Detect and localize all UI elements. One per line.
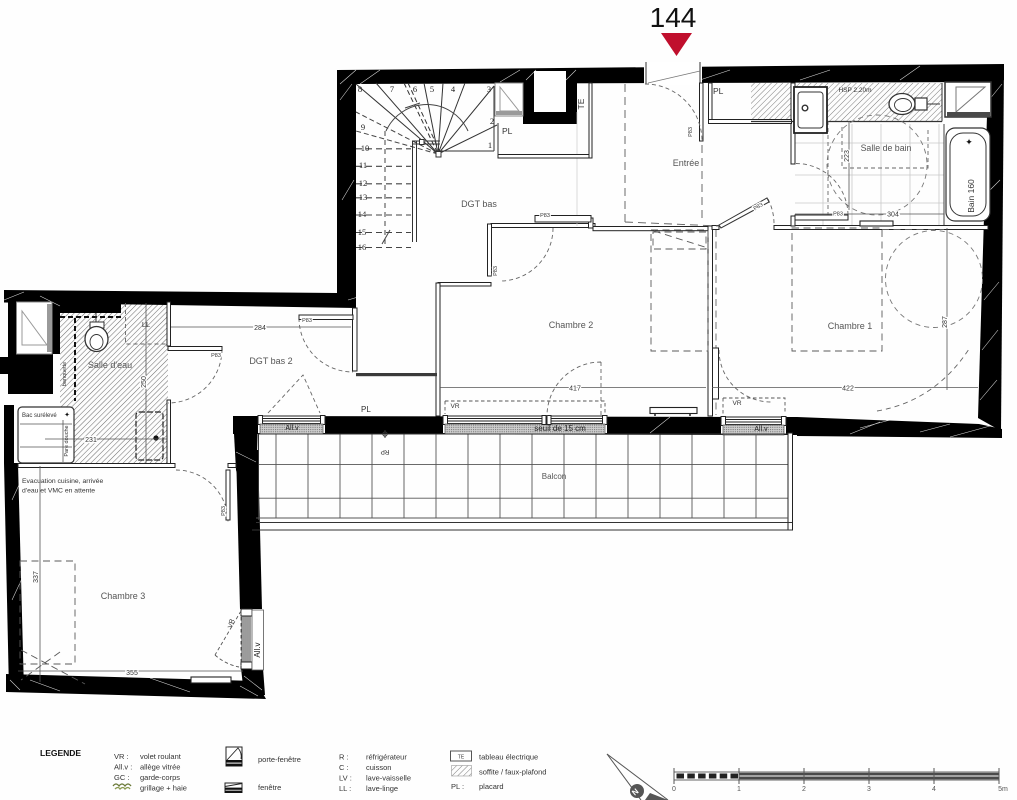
svg-text:RP: RP bbox=[380, 448, 389, 455]
svg-text:P83: P83 bbox=[211, 353, 221, 359]
svg-text:VR :: VR : bbox=[114, 752, 129, 761]
svg-text:284: 284 bbox=[254, 325, 266, 332]
svg-text:PL :: PL : bbox=[451, 782, 464, 791]
svg-text:✦: ✦ bbox=[965, 137, 973, 147]
svg-text:HSP 2.20m: HSP 2.20m bbox=[838, 87, 871, 94]
svg-text:Bac surélevé: Bac surélevé bbox=[22, 413, 57, 419]
svg-text:15: 15 bbox=[358, 227, 367, 237]
svg-text:All.v: All.v bbox=[253, 642, 262, 657]
svg-text:Evacuation cuisine, arrivée: Evacuation cuisine, arrivée bbox=[22, 478, 103, 485]
svg-text:3: 3 bbox=[487, 84, 491, 94]
svg-text:144: 144 bbox=[650, 2, 697, 33]
svg-text:1: 1 bbox=[488, 140, 492, 150]
svg-text:231: 231 bbox=[85, 437, 97, 444]
svg-text:allège vitrée: allège vitrée bbox=[140, 763, 180, 772]
svg-text:Chambre 1: Chambre 1 bbox=[828, 321, 873, 331]
svg-text:porte-fenêtre: porte-fenêtre bbox=[258, 755, 301, 764]
svg-text:3: 3 bbox=[867, 786, 871, 793]
svg-text:5m: 5m bbox=[998, 786, 1008, 793]
svg-text:0: 0 bbox=[672, 786, 676, 793]
svg-text:Salle de bain: Salle de bain bbox=[861, 143, 912, 153]
svg-text:R :: R : bbox=[339, 753, 349, 762]
svg-text:seuil de 15 cm: seuil de 15 cm bbox=[534, 424, 586, 433]
svg-text:Bain 160: Bain 160 bbox=[966, 179, 976, 213]
svg-text:LV :: LV : bbox=[339, 774, 352, 783]
svg-text:223: 223 bbox=[844, 150, 851, 162]
svg-text:Entrée: Entrée bbox=[673, 158, 700, 168]
svg-text:13: 13 bbox=[359, 192, 368, 202]
svg-text:355: 355 bbox=[126, 670, 138, 677]
svg-text:LL :: LL : bbox=[339, 784, 351, 793]
svg-text:PL: PL bbox=[713, 86, 724, 96]
svg-text:All.v :: All.v : bbox=[114, 763, 132, 772]
svg-text:C :: C : bbox=[339, 763, 349, 772]
svg-text:soffite / faux-plafond: soffite / faux-plafond bbox=[479, 768, 546, 777]
svg-text:P83: P83 bbox=[221, 506, 227, 516]
svg-text:304: 304 bbox=[887, 212, 899, 219]
svg-text:All.v: All.v bbox=[285, 425, 299, 432]
svg-text:PL: PL bbox=[361, 405, 371, 414]
svg-text:14: 14 bbox=[358, 209, 367, 219]
svg-text:PL: PL bbox=[502, 126, 513, 136]
svg-text:287: 287 bbox=[942, 316, 949, 328]
svg-text:banquette: banquette bbox=[62, 362, 68, 386]
svg-text:5: 5 bbox=[430, 84, 434, 94]
svg-text:DGT bas 2: DGT bas 2 bbox=[249, 356, 292, 366]
svg-text:VR: VR bbox=[732, 400, 741, 407]
svg-text:TE: TE bbox=[458, 755, 465, 761]
svg-text:Balcon: Balcon bbox=[542, 472, 566, 481]
svg-text:DGT bas: DGT bas bbox=[461, 199, 497, 209]
svg-text:volet roulant: volet roulant bbox=[140, 752, 182, 761]
svg-text:LEGENDE: LEGENDE bbox=[40, 748, 81, 758]
svg-text:P83: P83 bbox=[540, 213, 550, 219]
svg-text:P83: P83 bbox=[302, 318, 312, 324]
svg-text:12: 12 bbox=[359, 178, 368, 188]
svg-text:2: 2 bbox=[490, 116, 494, 126]
svg-text:P83: P83 bbox=[833, 212, 843, 218]
svg-text:9: 9 bbox=[361, 122, 365, 132]
svg-text:250: 250 bbox=[141, 376, 148, 388]
svg-text:Chambre 2: Chambre 2 bbox=[549, 320, 594, 330]
svg-text:TE: TE bbox=[576, 98, 586, 109]
svg-text:cuisson: cuisson bbox=[366, 763, 391, 772]
svg-text:lave-vaisselle: lave-vaisselle bbox=[366, 774, 411, 783]
svg-text:11: 11 bbox=[359, 160, 367, 170]
svg-text:VR: VR bbox=[450, 403, 459, 410]
svg-text:garde-corps: garde-corps bbox=[140, 773, 180, 782]
svg-text:LL: LL bbox=[142, 320, 150, 329]
svg-text:tableau électrique: tableau électrique bbox=[479, 753, 538, 762]
svg-text:4: 4 bbox=[932, 786, 936, 793]
svg-text:All.v: All.v bbox=[754, 426, 768, 433]
svg-text:337: 337 bbox=[33, 571, 40, 583]
svg-text:Chambre 3: Chambre 3 bbox=[101, 591, 146, 601]
svg-text:grillage + haie: grillage + haie bbox=[140, 784, 187, 793]
svg-text:Pare douche: Pare douche bbox=[64, 425, 70, 456]
svg-text:1: 1 bbox=[737, 786, 741, 793]
svg-text:Salle d'eau: Salle d'eau bbox=[88, 360, 132, 370]
svg-text:P83: P83 bbox=[688, 127, 694, 137]
svg-text:d'eau et VMC en attente: d'eau et VMC en attente bbox=[22, 488, 95, 495]
svg-text:8: 8 bbox=[358, 84, 362, 94]
svg-text:lave-linge: lave-linge bbox=[366, 784, 398, 793]
svg-text:fenêtre: fenêtre bbox=[258, 783, 281, 792]
svg-text:2: 2 bbox=[802, 786, 806, 793]
svg-text:GC :: GC : bbox=[114, 773, 129, 782]
svg-text:6: 6 bbox=[413, 84, 417, 94]
svg-text:417: 417 bbox=[569, 386, 581, 393]
svg-text:7: 7 bbox=[390, 84, 394, 94]
svg-text:422: 422 bbox=[842, 386, 854, 393]
svg-text:réfrigérateur: réfrigérateur bbox=[366, 753, 407, 762]
svg-text:P83: P83 bbox=[493, 266, 499, 276]
svg-text:10: 10 bbox=[361, 143, 370, 153]
svg-text:placard: placard bbox=[479, 782, 504, 791]
svg-text:16: 16 bbox=[358, 242, 367, 252]
svg-text:✦: ✦ bbox=[64, 411, 70, 419]
